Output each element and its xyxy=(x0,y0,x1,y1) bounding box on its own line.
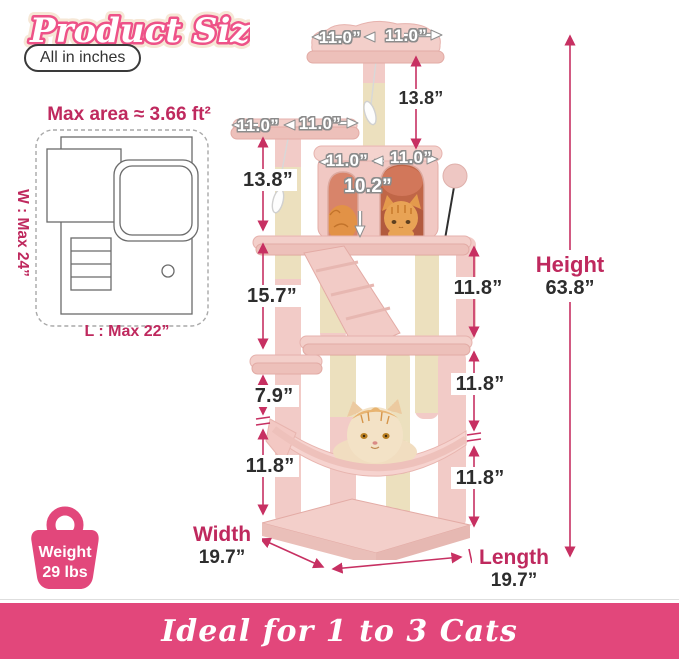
footer-banner-text: Ideal for 1 to 3 Cats xyxy=(161,614,518,649)
top-perch-right-label: 11.0” xyxy=(380,26,432,46)
weight-badge: Weight 29 lbs xyxy=(22,500,108,592)
top-perch-left-label: 11.0” xyxy=(314,28,366,48)
dim-left-middle: 15.7” xyxy=(243,285,301,307)
mid-perch-right-label: 11.0” xyxy=(294,114,346,134)
height-label: Height xyxy=(529,252,611,277)
width-value: 19.7” xyxy=(182,547,262,569)
dim-left-lower: 7.9” xyxy=(249,385,299,407)
footer-banner: Ideal for 1 to 3 Cats xyxy=(0,603,679,659)
length-value: 19.7” xyxy=(472,570,556,592)
length-label: Length xyxy=(472,546,556,570)
dim-right-upper: 11.8” xyxy=(449,277,507,299)
dim-left-upper: 13.8” xyxy=(239,169,297,191)
dim-top-post: 13.8” xyxy=(396,89,446,109)
weight-line2: 29 lbs xyxy=(42,564,87,581)
product-size-infographic: Product Size Product Size All in inches … xyxy=(0,0,679,659)
condo-inner-height-label: 10.2” xyxy=(338,176,398,198)
width-label: Width xyxy=(182,523,262,547)
section-divider xyxy=(0,599,679,600)
dim-left-bottom: 11.8” xyxy=(241,455,299,477)
width-dimension: Width 19.7” xyxy=(182,521,262,571)
weight-line1: Weight xyxy=(38,544,92,561)
dim-right-middle: 11.8” xyxy=(451,373,509,395)
height-dimension: Height 63.8” xyxy=(529,250,611,302)
dim-right-bottom: 11.8” xyxy=(451,467,509,489)
condo-left-label: 11.0” xyxy=(321,151,373,171)
mid-perch-left-label: 11.0” xyxy=(232,116,284,136)
length-dimension: Length 19.7” xyxy=(472,544,556,594)
height-value: 63.8” xyxy=(529,277,611,300)
condo-right-label: 11.0” xyxy=(385,148,437,168)
